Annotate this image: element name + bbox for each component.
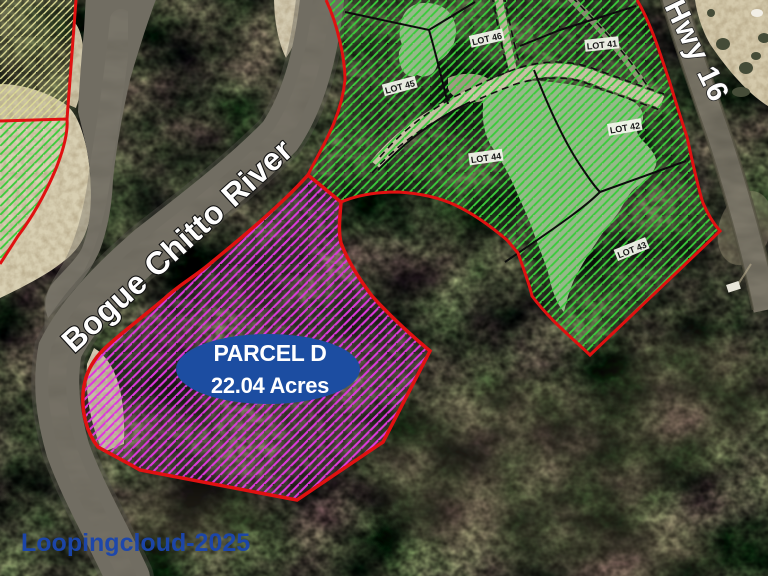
svg-text:22.04 Acres: 22.04 Acres (211, 373, 329, 398)
svg-text:Loopingcloud-2025: Loopingcloud-2025 (21, 529, 250, 557)
svg-text:PARCEL D: PARCEL D (213, 340, 326, 366)
